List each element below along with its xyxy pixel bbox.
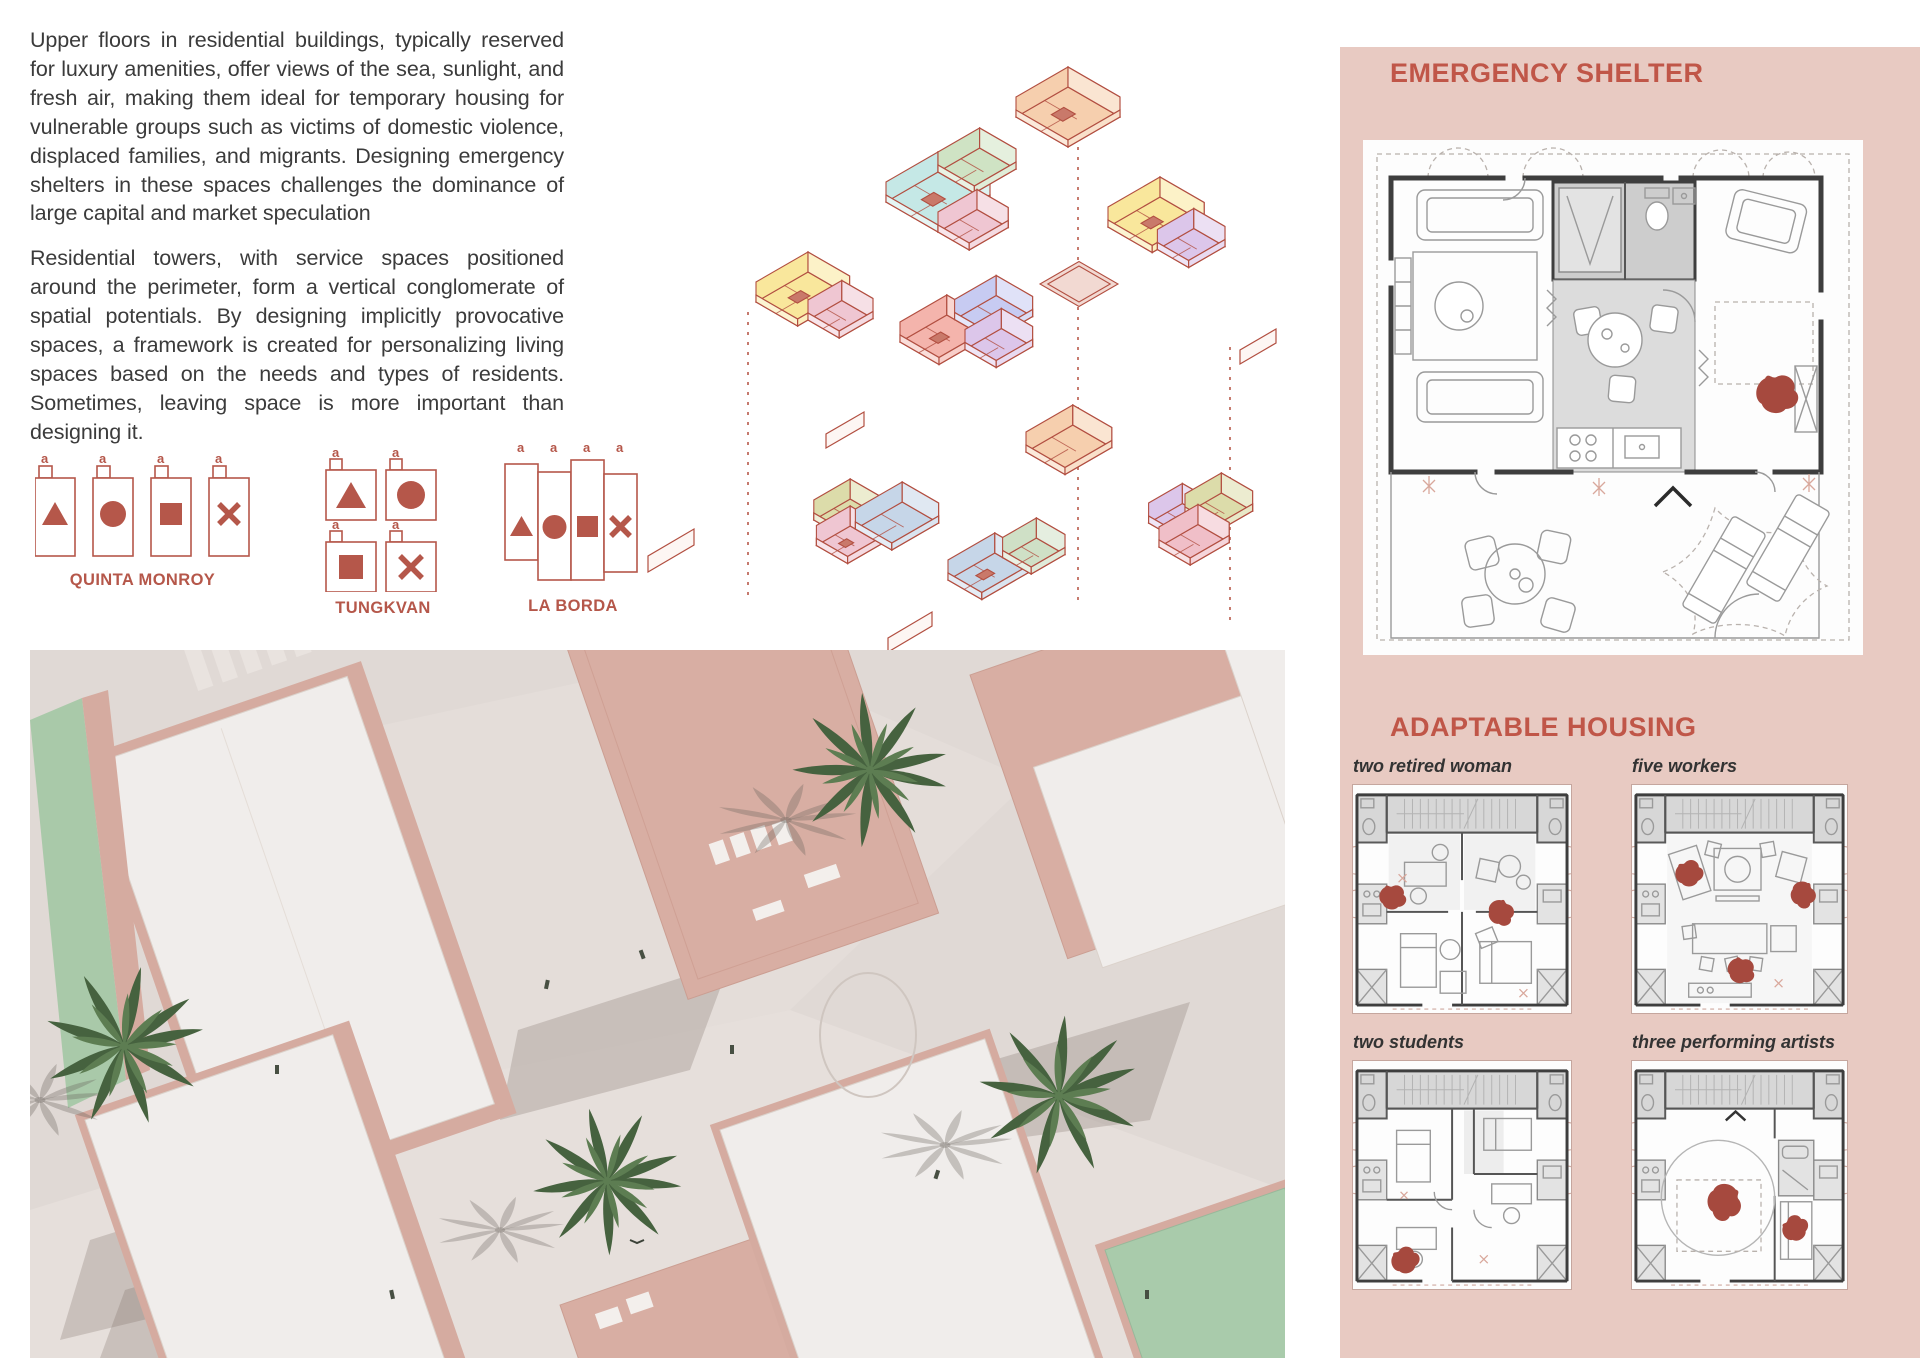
marker-a-label: a [332,517,340,532]
exploded-axonometric-diagram [588,12,1328,657]
marker-a-label: a [157,452,165,466]
intro-paragraph-2: Residential towers, with service spaces … [30,244,564,446]
circle-icon [543,515,567,539]
unit-card: a [35,452,75,556]
plan-label: three performing artists [1632,1032,1835,1053]
marker-a-label: a [517,440,525,455]
marker-a-label: a [550,440,558,455]
axon-floor-clusters [756,67,1253,600]
architecture-poster: Upper floors in residential buildings, t… [0,0,1920,1358]
floor-plan-two-students [1353,1061,1571,1289]
tungkvan-diagram: a a a a [324,448,442,592]
precedent-label: QUINTA MONROY [35,571,250,590]
unit-card: a [209,452,249,556]
square-icon [160,503,182,525]
circle-icon [100,501,126,527]
plan-label: two students [1353,1032,1464,1053]
marker-a-label: a [215,452,223,466]
plan-label: five workers [1632,756,1737,777]
circle-icon [397,481,425,509]
precedent-quinta-monroy: a a a a QUINTA MONROY [35,452,250,590]
intro-paragraph-1: Upper floors in residential buildings, t… [30,26,564,228]
intro-text: Upper floors in residential buildings, t… [30,26,564,463]
aerial-render [30,650,1285,1358]
marker-a-label: a [392,517,400,532]
precedent-label: TUNGKVAN [324,599,442,618]
square-icon [339,555,363,579]
floor-plan-two-retired-woman [1353,785,1571,1013]
quinta-monroy-diagram: a a a a [35,452,250,564]
plan-label: two retired woman [1353,756,1512,777]
emergency-shelter-floor-plan [1363,140,1863,655]
emergency-shelter-title: EMERGENCY SHELTER [1390,58,1704,89]
unit-card: a [93,452,133,556]
unit-card: a [151,452,191,556]
right-panel: EMERGENCY SHELTER [1340,47,1920,1358]
floor-plan-three-performing-artists [1632,1061,1847,1289]
marker-a-label: a [41,452,49,466]
marker-a-label: a [99,452,107,466]
adaptable-housing-title: ADAPTABLE HOUSING [1390,712,1697,743]
precedent-tungkvan: a a a a TUNGKVAN [324,448,442,618]
floor-plan-five-workers [1632,785,1847,1013]
